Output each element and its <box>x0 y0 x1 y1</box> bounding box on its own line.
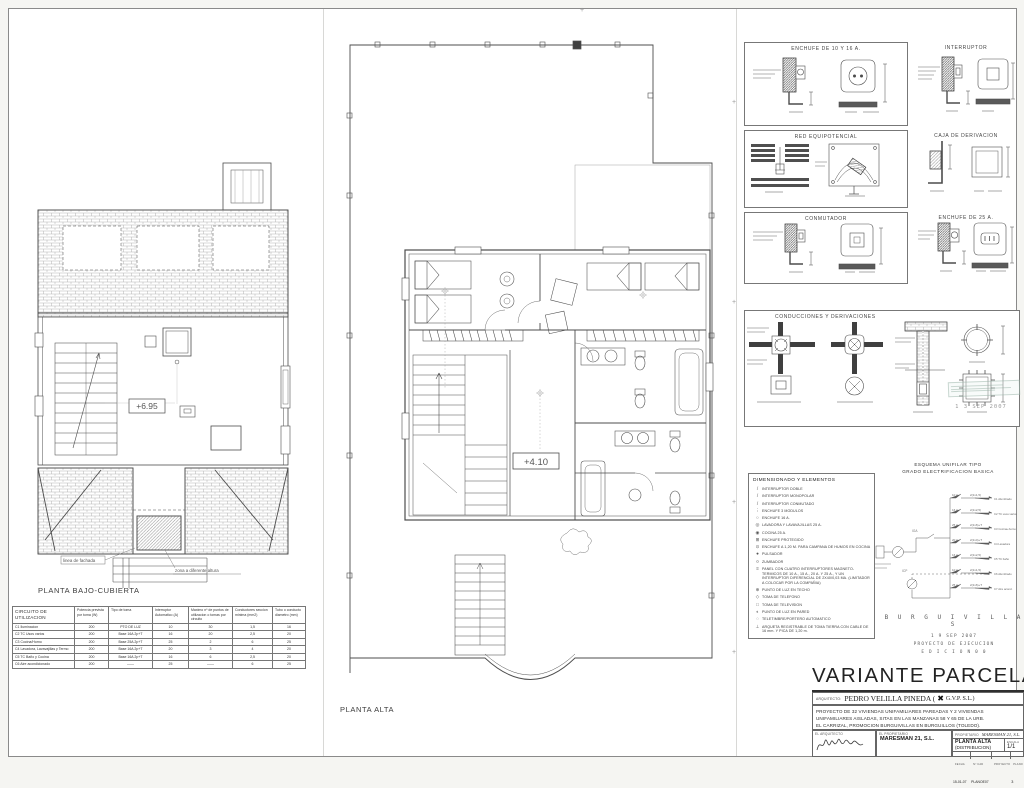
fecha-label: FECHA <box>953 762 965 766</box>
level-marker-alta: +4.10 <box>513 453 559 469</box>
plano-value: 3 <box>1011 780 1013 784</box>
svg-text:C4 Lavadora: C4 Lavadora <box>994 542 1010 546</box>
date-stamp-faded: 1 3 SEP 2007 <box>938 404 1024 410</box>
plan-center-title: PLANTA ALTA <box>340 705 394 714</box>
legend-item: ◉COCINA 25 A. <box>753 531 871 536</box>
panel-magnetotermicos-icon: ≡ <box>753 567 762 572</box>
fecha-value: 15-01-07 <box>953 780 967 784</box>
facade-steps <box>113 558 207 588</box>
drawing-big-title: VARIANTE PARCELA 58/1 <box>812 664 1024 692</box>
svg-text:C2 TC usos varios: C2 TC usos varios <box>994 512 1018 516</box>
stairs <box>413 355 507 515</box>
pulsador-icon: ● <box>753 552 762 557</box>
scanned-architectural-sheet: { "plans": { "left_label": "PLANTA BAJO-… <box>0 0 1024 768</box>
table-row: C5 TC Baño y Cocina200 Base 16A 2p+T16 6… <box>13 653 306 661</box>
punto-luz-pared-icon: ◐ <box>753 610 762 615</box>
detail-title: CONDUCCIONES Y DERIVACIONES <box>745 311 1019 320</box>
stamp-name: B U R G U I V I L L A S <box>878 614 1024 628</box>
svg-text:C1 Alumbrado: C1 Alumbrado <box>994 497 1012 501</box>
registration-mark: + <box>732 499 736 506</box>
ceiling-lights <box>441 287 647 451</box>
enchufe-campana-icon: ⊙ <box>753 545 762 550</box>
esquema-title-line1: ESQUEMA UNIFILAR TIPO <box>874 462 1022 469</box>
detail-title: ENCHUFE DE 25 A. <box>916 212 1016 221</box>
svg-text:IGA: IGA <box>912 529 918 533</box>
legend-item: ⊕PUNTO DE LUZ EN TECHO <box>753 588 871 593</box>
lavadora-icon: ◎ <box>753 523 762 528</box>
house-walls <box>402 247 713 520</box>
punto-luz-techo-icon: ⊕ <box>753 588 762 593</box>
esquema-unifilar: IGA 10 A 16 A 25 A 20 A 16 A 10 A 25 A 2… <box>872 480 1024 608</box>
enchufe-16a-icon: ○ <box>753 516 762 521</box>
detail-enchufe-25: ENCHUFE DE 25 A. <box>916 212 1016 282</box>
svg-text:2(1x1,5): 2(1x1,5) <box>970 493 981 497</box>
svg-text:2(1x6)+T: 2(1x6)+T <box>970 583 982 587</box>
fold-line-1 <box>323 9 324 756</box>
plan-left-title: PLANTA BAJO-CUBIERTA <box>38 586 140 595</box>
legend-item: ○ENCHUFE 16 A. <box>753 516 871 521</box>
owner-cell: EL PROPIETARIO MARESMAN 21, S.L. <box>876 730 952 757</box>
stamp-proyecto: PROYECTO DE EJECUCION <box>878 642 1024 647</box>
legend-item: ◐PUNTO DE LUZ EN PARED <box>753 610 871 615</box>
gvp-name: G.V.P. S.L.) <box>946 696 975 702</box>
escala-value: 1/1 <box>1005 744 1023 750</box>
enchufe-protegido-icon: ⊞ <box>753 538 762 543</box>
architect-signature <box>813 736 869 754</box>
col-max-puntos: Maximo nº de puntos de utilizacion o tom… <box>189 607 233 624</box>
legend-item: ¤ZUMBADOR <box>753 560 871 565</box>
svg-text:2(1x4)+T: 2(1x4)+T <box>970 538 982 542</box>
col-tipo: Tipo de toma <box>109 607 153 624</box>
exterior-stair <box>455 555 505 655</box>
lower-roof <box>38 468 288 554</box>
visado-stamp <box>948 380 1020 397</box>
fold-line-2 <box>736 9 737 756</box>
svg-text:+4.10: +4.10 <box>524 457 548 468</box>
hall-furniture <box>500 272 514 308</box>
table-row: C1 Iluminacion200 PTO DE LUZ10 301,5 16 <box>13 623 306 631</box>
col-interruptor: Interruptor Automatico (A) <box>153 607 189 624</box>
table-header-row: CIRCUITO DE UTILIZACION Potencia previst… <box>13 607 306 624</box>
svg-text:C3 Cocina+horno: C3 Cocina+horno <box>994 527 1016 531</box>
legend-item: ⋮ENCHUFE 3 MODULOS <box>753 509 871 514</box>
bathrooms <box>581 348 703 516</box>
detail-title: CONMUTADOR <box>745 213 907 222</box>
detail-title: RED EQUIPOTENCIAL <box>745 131 907 140</box>
table-row: C2 TC Usos varios200 Base 16A 2p+T16 202… <box>13 631 306 639</box>
detail-enchufe-25-drawing <box>916 221 1016 275</box>
legend-title: DIMENSIONADO Y ELEMENTOS <box>753 478 871 483</box>
detail-interruptor-drawing <box>916 51 1016 117</box>
toma-telefono-icon: ◇ <box>753 595 762 600</box>
legend-item: ◌TELETIMBRE/PORTERO AUTOMATICO <box>753 617 871 622</box>
level-marker: +6.95 <box>129 399 165 413</box>
legend-dimensionado: DIMENSIONADO Y ELEMENTOS /INTERRUPTOR DO… <box>748 473 875 639</box>
svg-text:+6.95: +6.95 <box>136 401 158 411</box>
legend-item: /INTERRUPTOR DOBLE <box>753 487 871 492</box>
plan-alta: +4.10 <box>335 33 730 705</box>
project-line: UNIFAMILIARES AISLADAS, SITAS EN LAS MAN… <box>816 715 1020 722</box>
table-row: C4 Lavadora, Lavavajillas y Termo200 Bas… <box>13 646 306 654</box>
detail-red-equipotencial: RED EQUIPOTENCIAL <box>744 130 908 208</box>
detail-red-equipotencial-drawing <box>745 140 905 200</box>
legend-item: ⊥ARQUETA REGISTRABLE DE TOMA TIERRA CON … <box>753 625 871 634</box>
svg-text:zona a diferente altura: zona a diferente altura <box>175 568 219 573</box>
sheet-subtitle: (DISTRIBUCION) <box>955 745 1004 750</box>
legend-item: /INTERRUPTOR MONOPOLAR <box>753 494 871 499</box>
project-line: EL CARRIZAL, PROMOCION BURGUIVILLAS EN B… <box>816 722 1020 729</box>
stamp-date: 1 9 SEP 2007 <box>878 634 1024 639</box>
registration-mark: + <box>732 299 736 306</box>
detail-caja-derivacion: CAJA DE DERIVACION <box>916 130 1016 206</box>
toma-television-icon: □ <box>753 603 762 608</box>
owner-name: MARESMAN 21, S.L. <box>877 736 951 742</box>
detail-interruptor: INTERRUPTOR <box>916 42 1016 124</box>
registration-mark: + <box>732 99 736 106</box>
project-description: PROYECTO DE 32 VIVIENDAS UNIFAMILIARES P… <box>812 705 1024 730</box>
detail-title: CAJA DE DERIVACION <box>916 130 1016 139</box>
cad-label: Nº CAD <box>971 762 983 766</box>
table-row: C3 Cocina/Horno200 Base 25A 2p+T25 26 25 <box>13 638 306 646</box>
stamp-edicion: E D I C I O N 0 0 <box>878 650 1024 655</box>
col-potencia: Potencia prevista por toma (W) <box>75 607 109 624</box>
legend-item: ●PULSADOR <box>753 552 871 557</box>
svg-text:C6 Alumbrado: C6 Alumbrado <box>994 572 1012 576</box>
architect-row: ARQUITECTO: PEDRO VELILLA PINEDA ( ✖ G.V… <box>812 692 1024 705</box>
legend-item: ⊞ENCHUFE PROTEGIDO <box>753 538 871 543</box>
svg-text:ICP: ICP <box>902 569 907 573</box>
col-tubo: Tubo o conducto diametro (mm) <box>273 607 306 624</box>
legend-item: ◇TOMA DE TELEFONO <box>753 595 871 600</box>
roof-hatch <box>38 210 288 317</box>
garden-tree <box>561 529 592 555</box>
svg-text:2(1x2,5): 2(1x2,5) <box>970 553 981 557</box>
interruptor-doble-icon: / <box>753 487 762 492</box>
arqueta-tierra-icon: ⊥ <box>753 625 762 630</box>
gvp-logo-icon: ✖ <box>937 694 944 703</box>
plan-bajo-cubierta: +6.95 linea de fachada <box>25 158 297 594</box>
svg-text:2(1x2,5): 2(1x2,5) <box>970 508 981 512</box>
project-line: PROYECTO DE 32 VIVIENDAS UNIFAMILIARES P… <box>816 708 1020 715</box>
detail-title: INTERRUPTOR <box>916 42 1016 51</box>
bedroom-left <box>415 261 523 341</box>
architect-name: PEDRO VELILLA PINEDA ( <box>844 694 935 703</box>
interruptor-conmutado-icon: / <box>753 502 762 507</box>
plano-label: PLANO <box>1011 762 1023 766</box>
col-conductores: Conductores seccion minima (mm2) <box>233 607 273 624</box>
registration-mark: + <box>580 7 584 14</box>
legend-item: ◎LAVADORA Y LAVAVAJILLAS 25 A. <box>753 523 871 528</box>
burguivillas-stamp: B U R G U I V I L L A S 1 9 SEP 2007 PRO… <box>878 614 1024 658</box>
sheet-info-cell: PROPIETARIO MARESMAN 21, S.L. PLANTA ALT… <box>952 730 1024 757</box>
legend-item: □TOMA DE TELEVISION <box>753 603 871 608</box>
cad-value: PLANOE07 <box>971 780 989 784</box>
legend-item: /INTERRUPTOR CONMUTADO <box>753 502 871 507</box>
esquema-title: ESQUEMA UNIFILAR TIPO GRADO ELECTRIFICAC… <box>874 462 1022 476</box>
zumbador-icon: ¤ <box>753 560 762 565</box>
svg-text:C5 TC baño: C5 TC baño <box>994 557 1009 561</box>
proyecto-label: PROYECTO <box>992 762 1010 766</box>
interruptor-monopolar-icon: / <box>753 494 762 499</box>
owner-handwritten: MARESMAN 21, S.L. <box>982 732 1021 737</box>
architect-signature-cell: EL ARQUITECTO <box>812 730 876 757</box>
legend-item: ⊙ENCHUFE A 1,20 M. PARA CAMPANA DE HUMOS… <box>753 545 871 550</box>
svg-text:2(1x1,5): 2(1x1,5) <box>970 568 981 572</box>
parcel-boundary <box>347 41 714 680</box>
table-row: C6 Aire acondicionado200 ——25 ——6 25 <box>13 661 306 669</box>
detail-enchufe-10-16-drawing <box>745 52 905 118</box>
circuit-table: CIRCUITO DE UTILIZACION Potencia previst… <box>12 606 306 669</box>
detail-enchufe-10-16: ENCHUFE DE 10 Y 16 A. <box>744 42 908 126</box>
legend-item: ≡PANEL CON CUATRO INTERRUPTORES MAGNETO-… <box>753 567 871 586</box>
architect-label: ARQUITECTO: <box>816 697 841 701</box>
bedroom-right <box>545 263 699 341</box>
esquema-title-line2: GRADO ELECTRIFICACION BASICA <box>874 469 1022 476</box>
detail-title: ENCHUFE DE 10 Y 16 A. <box>745 43 907 52</box>
detail-conmutador-drawing <box>745 222 905 276</box>
svg-text:2(1x6)+T: 2(1x6)+T <box>970 523 982 527</box>
detail-conmutador: CONMUTADOR <box>744 212 908 284</box>
cocina-icon: ◉ <box>753 531 762 536</box>
enchufe-3-modulos-icon: ⋮ <box>753 509 762 514</box>
propietario-label: PROPIETARIO <box>953 733 979 737</box>
teletimbre-icon: ◌ <box>753 617 762 622</box>
svg-text:C7 Aire acond.: C7 Aire acond. <box>994 587 1013 591</box>
detail-caja-derivacion-drawing <box>916 139 1016 199</box>
chimney <box>223 163 271 210</box>
partitions <box>409 254 706 520</box>
svg-text:linea de fachada: linea de fachada <box>63 558 96 563</box>
col-circuito: CIRCUITO DE UTILIZACION <box>13 607 75 624</box>
registration-mark: + <box>732 649 736 656</box>
